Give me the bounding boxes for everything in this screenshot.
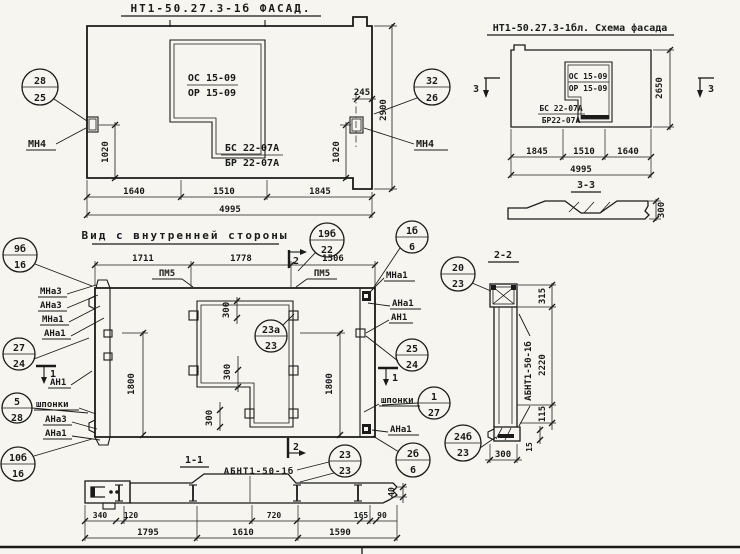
dim-1845: 1845: [309, 187, 331, 197]
svg-text:АНа1: АНа1: [392, 299, 414, 309]
section22-title: 2-2: [494, 250, 512, 261]
svg-text:19б: 19б: [318, 228, 336, 240]
section11-product-label: АБНТ1-50-1б: [224, 466, 295, 477]
inner-window-outline: [197, 301, 293, 427]
svg-text:28: 28: [11, 413, 23, 424]
dim-300-bottom: 300: [495, 450, 511, 460]
inner-callouts: 9б 16 27 24 5 28 10б 16 19б 22 1б: [1, 221, 450, 482]
dim-15: 15: [525, 442, 534, 452]
svg-text:24: 24: [406, 360, 418, 371]
section3-arrow-left: [483, 90, 489, 98]
inner-dim-lines: 1711 1778 1506 1800 1800 300 300: [92, 254, 378, 438]
svg-text:2б: 2б: [407, 448, 419, 460]
facade-view: НТ1-50.27.3-1б ФАСАД. ОС 15-09 ОР 15-09 …: [22, 2, 450, 218]
svg-text:1778: 1778: [230, 254, 252, 264]
dim-1800-left: 1800: [127, 373, 137, 395]
schema-view: НТ1-50.27.3-1бл. Схема фасада ОС 15-09 О…: [473, 22, 714, 178]
dim-40: 40: [387, 487, 396, 497]
svg-text:МНа3: МНа3: [40, 287, 62, 297]
dim-2220: 2220: [538, 354, 548, 376]
sheet-frame: [0, 547, 740, 554]
section11-profile: [130, 474, 397, 503]
svg-text:20: 20: [452, 263, 464, 274]
section33-title: 3-3: [577, 180, 595, 191]
svg-text:300: 300: [205, 410, 215, 426]
svg-text:720: 720: [267, 511, 282, 520]
svg-text:23: 23: [265, 341, 277, 352]
section2-label-top: 2: [293, 256, 299, 267]
section11-anchor-bars: [115, 476, 362, 502]
svg-text:9б: 9б: [14, 243, 26, 255]
inner-top-left-tab: [96, 280, 110, 288]
svg-text:5: 5: [14, 397, 20, 408]
inner-panel-outline: [95, 288, 375, 437]
section2-arrow-bottom: [299, 450, 306, 456]
svg-text:МНа1: МНа1: [386, 271, 408, 281]
svg-text:1711: 1711: [132, 254, 154, 264]
schema-lintel-mark-bottom: БР22-07А: [542, 116, 581, 125]
svg-text:90: 90: [377, 511, 387, 520]
svg-text:23: 23: [452, 279, 464, 290]
section-1-1: 1-1 АБНТ1-50-1б: [82, 455, 407, 541]
section22-callouts: 20 23 24б 23: [441, 257, 496, 461]
schema-dim-lines: 2650 1845 1510 1640 4995: [508, 47, 674, 178]
dim-1020-left: 1020: [101, 141, 111, 163]
inner-window-plates: [189, 311, 298, 418]
section1-arrow-left: [41, 377, 47, 384]
svg-text:6: 6: [410, 465, 416, 476]
panel-drawing: НТ1-50.27.3-1б ФАСАД. ОС 15-09 ОР 15-09 …: [0, 0, 740, 554]
schema-window-mark-bottom: ОР 15-09: [569, 84, 608, 93]
section22-product-label: АБНТ1-50-1б: [523, 341, 534, 401]
svg-text:32: 32: [426, 76, 438, 87]
facade-anchor-label-right: МН4: [416, 139, 434, 150]
drawing-sheet: НТ1-50.27.3-1б ФАСАД. ОС 15-09 ОР 15-09 …: [0, 0, 740, 554]
dim-2650: 2650: [655, 77, 665, 99]
dim-1640: 1640: [123, 187, 145, 197]
schema-lintel-mark-top: БС 22-07А: [539, 104, 583, 113]
svg-text:28: 28: [34, 76, 46, 87]
svg-text:АНа1: АНа1: [45, 429, 67, 439]
svg-text:1510: 1510: [573, 147, 595, 157]
section-3-3: 3-3 300: [508, 180, 667, 222]
svg-text:АНа3: АНа3: [40, 301, 62, 311]
dim-1800-right: 1800: [325, 373, 335, 395]
svg-text:27: 27: [428, 408, 440, 419]
section33-profile: [508, 201, 649, 219]
svg-text:1610: 1610: [232, 528, 254, 538]
section1-arrow-right: [383, 379, 389, 386]
svg-text:1795: 1795: [137, 528, 159, 538]
svg-text:1: 1: [431, 392, 437, 403]
facade-title: НТ1-50.27.3-1б ФАСАД.: [130, 2, 311, 15]
dim-300-thickness: 300: [657, 202, 667, 218]
svg-text:МНа1: МНа1: [42, 315, 64, 325]
svg-text:24: 24: [13, 359, 25, 370]
svg-text:АН1: АН1: [391, 313, 407, 323]
plate-label-2: ПМ5: [314, 269, 330, 279]
facade-window-mark-bottom: ОР 15-09: [188, 88, 236, 99]
inner-title: Вид с внутренней стороны: [82, 229, 289, 242]
dim-1510: 1510: [213, 187, 235, 197]
svg-text:1590: 1590: [329, 528, 351, 538]
dim-315: 315: [538, 288, 548, 304]
section2-arrow-top: [300, 249, 307, 255]
dim-4995: 4995: [219, 205, 241, 215]
svg-text:16: 16: [12, 469, 24, 480]
label-an1-left: АН1: [50, 378, 66, 388]
inner-bottom-left-tab: [95, 437, 110, 445]
plate-label-1: ПМ5: [159, 269, 175, 279]
inner-view: Вид с внутренней стороны: [1, 221, 450, 482]
svg-text:22: 22: [321, 245, 333, 256]
dim-2900: 2900: [379, 99, 389, 121]
dim-245: 245: [354, 88, 370, 98]
svg-text:120: 120: [124, 511, 139, 520]
svg-text:300: 300: [222, 302, 232, 318]
svg-text:23: 23: [339, 466, 351, 477]
schema-title: НТ1-50.27.3-1бл. Схема фасада: [493, 22, 668, 34]
svg-text:300: 300: [223, 364, 233, 380]
svg-text:АНа3: АНа3: [45, 415, 67, 425]
svg-text:1б: 1б: [406, 225, 418, 237]
svg-text:23а: 23а: [262, 325, 280, 336]
dim-1020-right: 1020: [332, 141, 342, 163]
svg-text:25: 25: [406, 344, 418, 355]
svg-text:340: 340: [93, 511, 108, 520]
svg-text:6: 6: [409, 242, 415, 253]
facade-window-outline: [170, 40, 265, 158]
svg-text:24б: 24б: [454, 431, 472, 443]
section3-label-left: 3: [473, 84, 479, 95]
section11-title: 1-1: [185, 455, 203, 466]
svg-text:23: 23: [457, 448, 469, 459]
svg-text:10б: 10б: [9, 452, 27, 464]
svg-text:1640: 1640: [617, 147, 639, 157]
facade-window-mark-top: ОС 15-09: [188, 73, 236, 84]
facade-lintel-mark-bottom: БР 22-07А: [225, 158, 279, 169]
svg-text:25: 25: [34, 93, 46, 104]
label-ana1-right-bottom: АНа1: [390, 425, 412, 435]
svg-text:26: 26: [426, 93, 438, 104]
section1-label-right: 1: [392, 373, 398, 384]
schema-window-sill: [581, 115, 609, 119]
svg-text:АНа1: АНа1: [44, 329, 66, 339]
section2-label-bottom: 2: [293, 442, 299, 453]
dim-115: 115: [538, 406, 548, 422]
svg-text:27: 27: [13, 343, 25, 354]
section3-label-right: 3: [708, 84, 714, 95]
facade-callout-left: 28 25: [22, 69, 87, 121]
svg-text:4995: 4995: [570, 165, 592, 175]
facade-lintel-mark-top: БС 22-07А: [225, 143, 279, 154]
facade-anchor-label-left: МН4: [28, 139, 46, 150]
svg-text:23: 23: [339, 450, 351, 461]
svg-text:165: 165: [354, 511, 369, 520]
svg-text:1845: 1845: [526, 147, 548, 157]
svg-text:16: 16: [14, 260, 26, 271]
schema-window-mark-top: ОС 15-09: [569, 72, 608, 81]
section3-arrow-right: [697, 90, 703, 98]
section-2-2: 2-2 АБНТ1-50-1б 315 2220: [441, 250, 556, 463]
